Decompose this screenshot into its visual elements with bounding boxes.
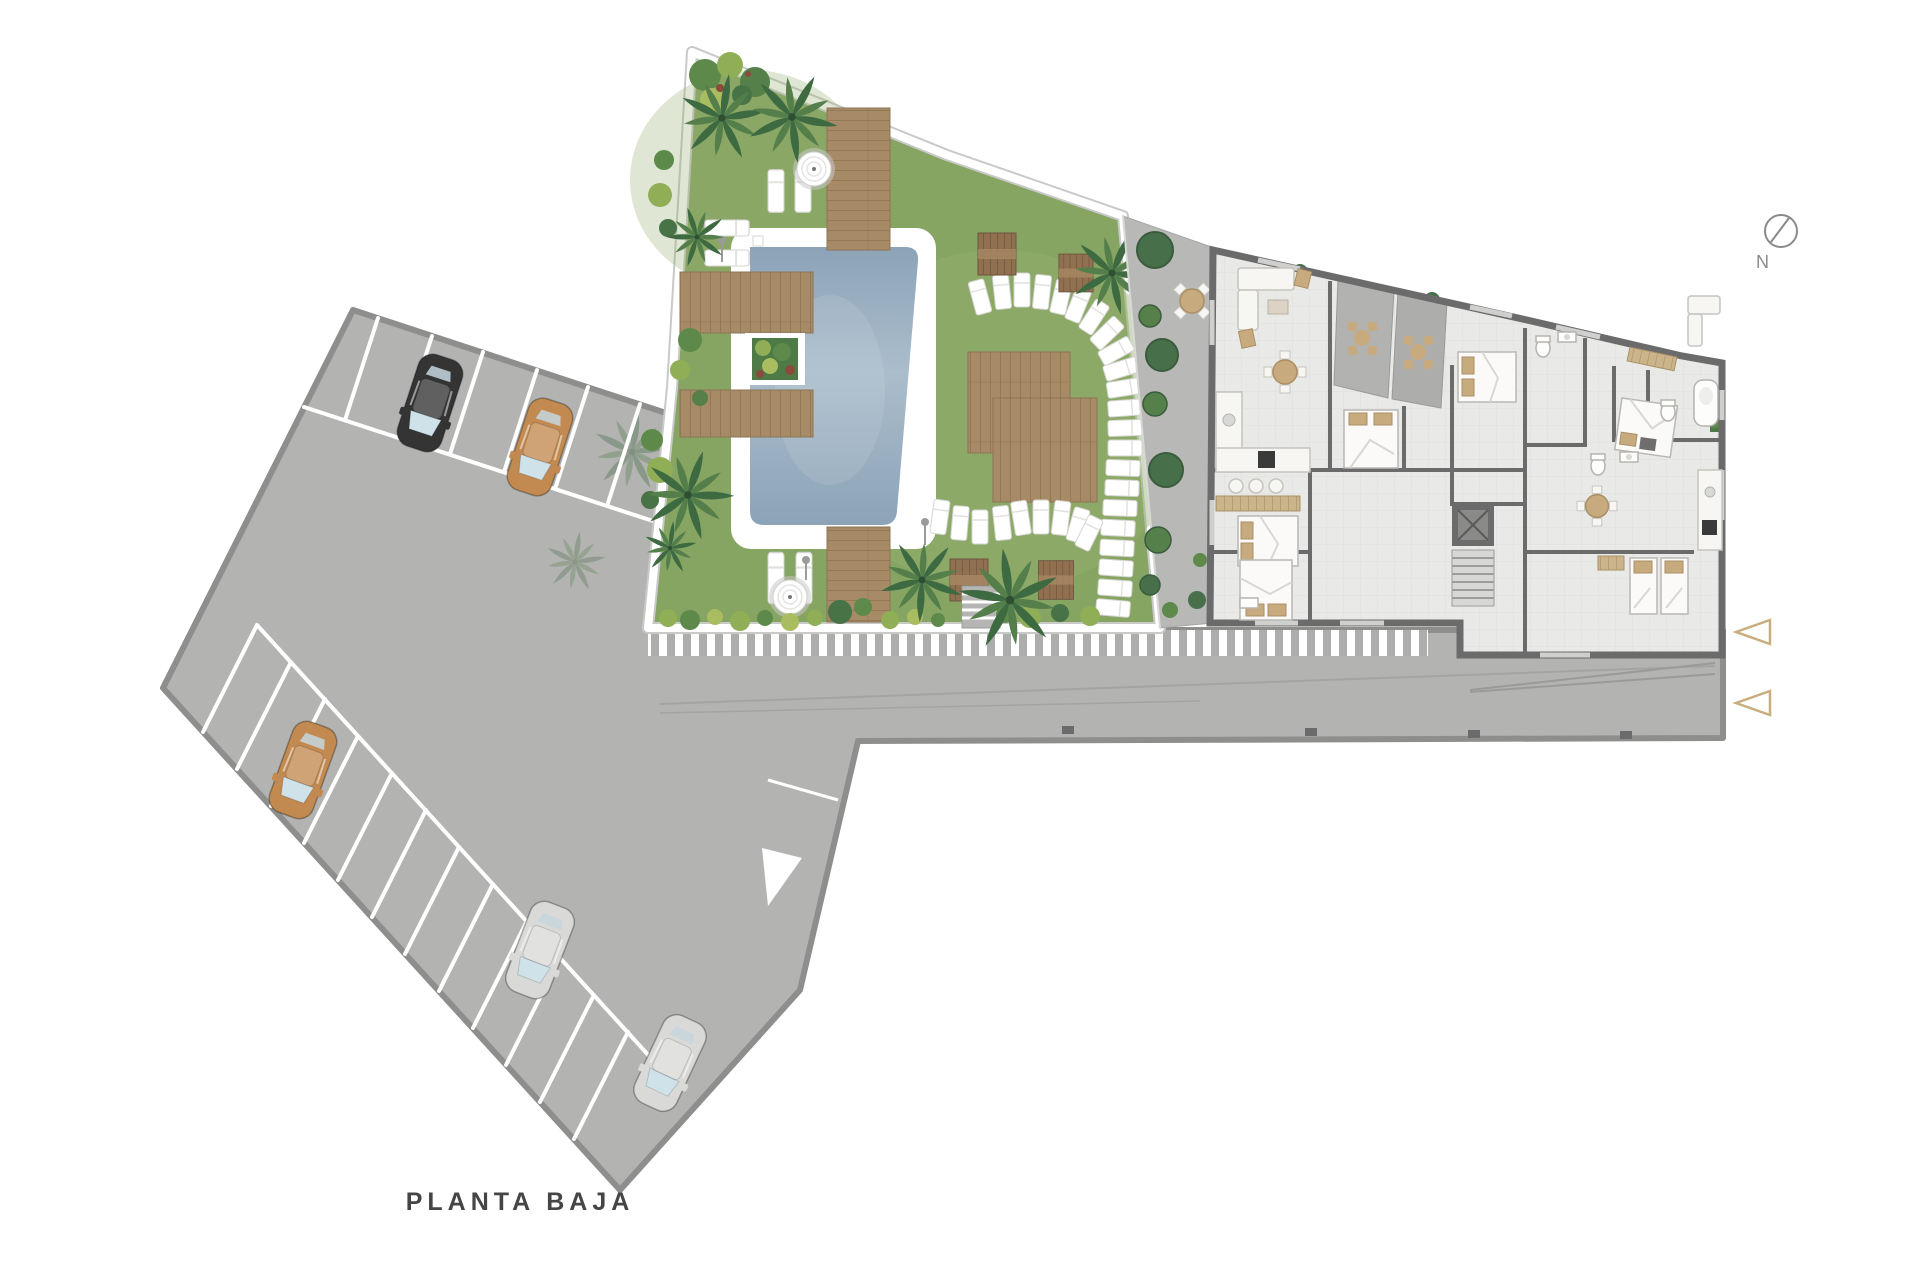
bar-stool xyxy=(1229,479,1243,493)
pool-deck-top xyxy=(827,108,890,250)
page-title: PLANTA BAJA xyxy=(0,1188,1920,1217)
pool-garden xyxy=(630,52,1190,670)
compass-icon xyxy=(1765,215,1797,247)
entrance-arrow-icon-2 xyxy=(1736,691,1770,715)
entrance-arrow-icon-1 xyxy=(1736,620,1770,644)
jacuzzi-bottom xyxy=(769,576,811,618)
floor-plan-canvas: N xyxy=(0,0,1920,1280)
cooktop xyxy=(1258,451,1275,468)
site-plan-page: N PLANTA BAJA xyxy=(0,0,1920,1280)
entrance-markers xyxy=(1736,620,1770,715)
compass-needle xyxy=(1771,218,1789,242)
kitchen-sink xyxy=(1223,414,1235,426)
garden-deck-2 xyxy=(993,398,1097,502)
picnic-table xyxy=(978,233,1016,275)
elevator-core xyxy=(1452,504,1494,546)
bed-3 xyxy=(1344,410,1398,468)
bed-1 xyxy=(1238,516,1298,566)
bar-stool xyxy=(1249,479,1263,493)
wardrobe xyxy=(1216,496,1300,511)
staircase xyxy=(1452,550,1494,606)
floor-title-text: PLANTA BAJA xyxy=(406,1188,635,1217)
coffee-table xyxy=(1268,300,1288,314)
picnic-table xyxy=(1039,561,1074,600)
wardrobe-3 xyxy=(1598,556,1624,570)
bar-stool xyxy=(1269,479,1283,493)
kitchen-2 xyxy=(1698,470,1722,550)
pool-planter xyxy=(745,333,805,385)
north-label: N xyxy=(1756,252,1769,272)
bed-4 xyxy=(1458,352,1516,402)
building xyxy=(1210,250,1722,655)
bed-2 xyxy=(1240,560,1292,620)
compass: N xyxy=(1756,215,1797,272)
sofa-2 xyxy=(1688,296,1720,346)
pool-deck-finger-1 xyxy=(680,272,813,333)
jacuzzi-top xyxy=(793,148,835,190)
